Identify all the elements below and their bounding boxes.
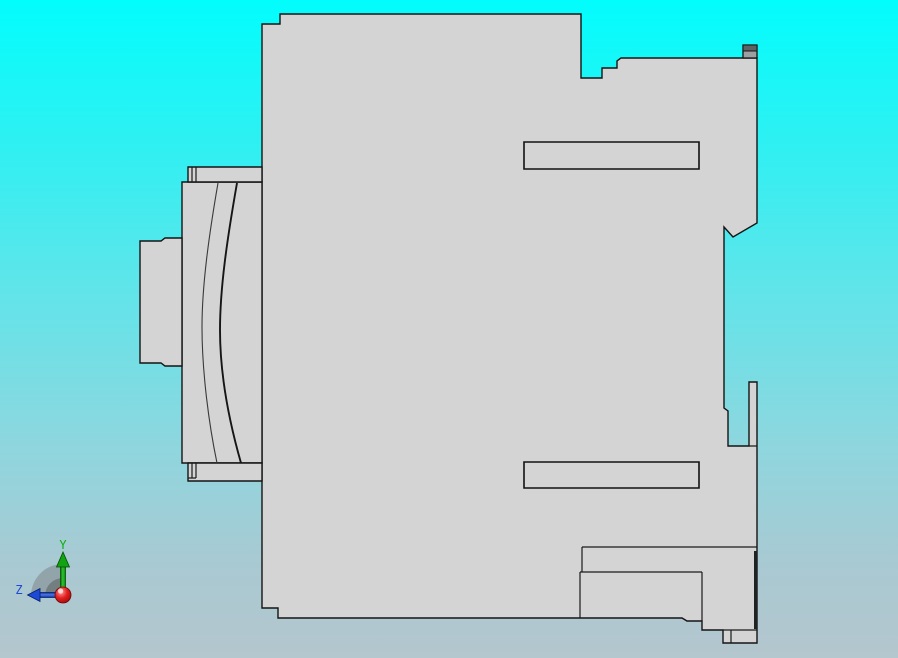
- coil-block[interactable]: [182, 182, 262, 463]
- coil-bottom-bar: [188, 463, 262, 481]
- y-axis-arrowhead-icon: [57, 552, 70, 567]
- y-axis-shaft: [61, 565, 66, 589]
- origin-sphere: [55, 587, 71, 603]
- coil-top-bar: [188, 167, 262, 182]
- part-side-profile[interactable]: [140, 14, 757, 643]
- din-clip-band: [743, 45, 757, 51]
- z-axis-label: Z: [15, 583, 22, 597]
- model-canvas[interactable]: Y Z: [0, 0, 898, 658]
- axis-triad: Y Z: [15, 538, 71, 603]
- origin-sphere-highlight: [58, 588, 63, 593]
- part-silhouette[interactable]: [262, 14, 757, 643]
- y-axis-label: Y: [59, 538, 67, 552]
- mount-flange: [140, 238, 182, 366]
- cad-viewport[interactable]: Y Z: [0, 0, 898, 658]
